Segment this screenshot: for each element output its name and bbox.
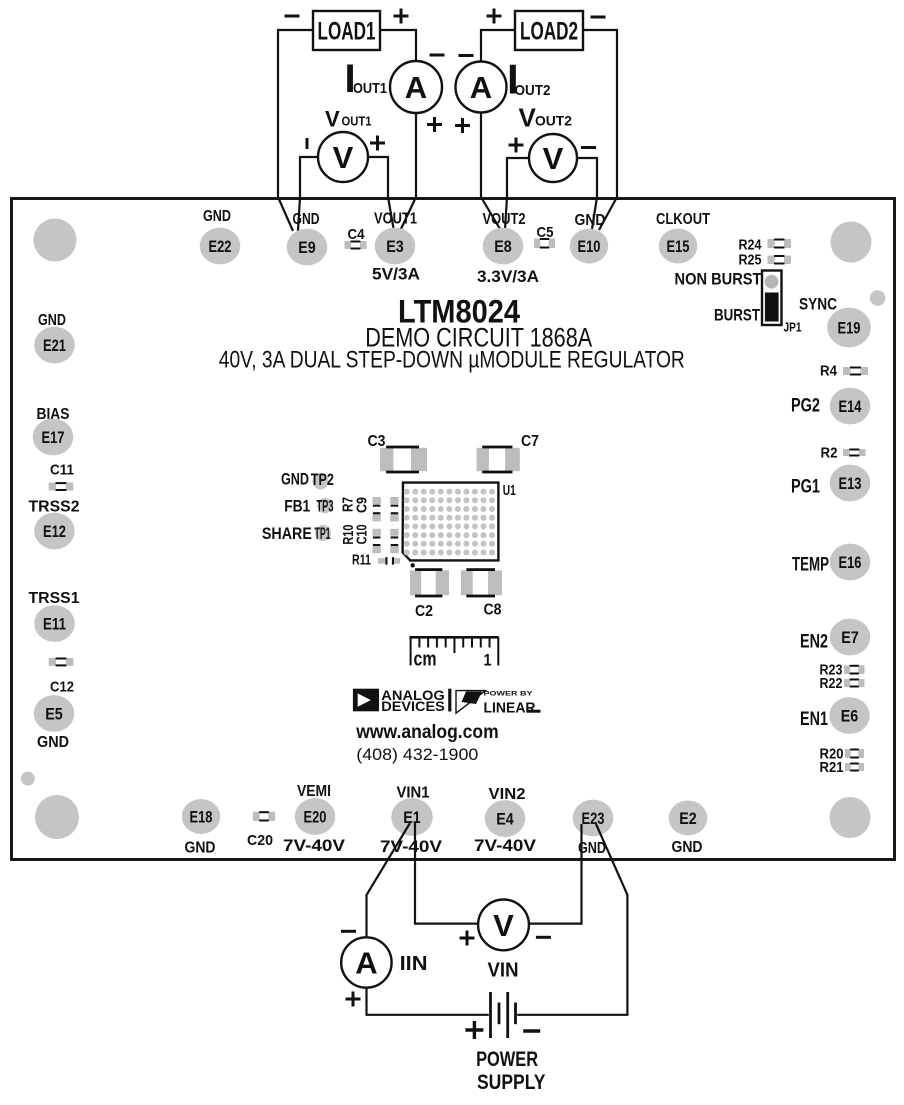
svg-text:C10: C10	[354, 524, 370, 544]
svg-text:C3: C3	[368, 433, 386, 450]
svg-text:E18: E18	[190, 808, 213, 826]
svg-text:A: A	[405, 70, 427, 105]
svg-text:C5: C5	[537, 224, 554, 241]
svg-text:E22: E22	[209, 238, 232, 256]
svg-text:PG1: PG1	[791, 477, 820, 498]
svg-text:GND: GND	[185, 840, 216, 857]
svg-text:E9: E9	[298, 239, 316, 257]
svg-text:PG2: PG2	[791, 396, 820, 417]
svg-text:R2: R2	[821, 445, 838, 462]
svg-text:www.analog.com: www.analog.com	[355, 722, 498, 743]
svg-text:C20: C20	[247, 832, 273, 849]
svg-text:OUT1: OUT1	[342, 114, 372, 129]
svg-text:R4: R4	[820, 363, 838, 380]
svg-text:E15: E15	[667, 238, 690, 256]
svg-text:E1: E1	[403, 809, 421, 827]
svg-text:SUPPLY: SUPPLY	[477, 1071, 546, 1094]
svg-text:CLKOUT: CLKOUT	[656, 211, 710, 228]
svg-text:GND: GND	[293, 211, 320, 228]
svg-text:OUT2: OUT2	[515, 82, 551, 99]
svg-text:V: V	[543, 141, 564, 176]
svg-text:E4: E4	[496, 810, 514, 828]
svg-text:LINEAR: LINEAR	[484, 699, 536, 716]
svg-text:EN1: EN1	[800, 709, 828, 730]
svg-text:(408) 432-1900: (408) 432-1900	[356, 746, 478, 764]
svg-text:C7: C7	[521, 433, 539, 450]
svg-text:GND: GND	[37, 734, 69, 751]
svg-text:A: A	[355, 946, 377, 981]
svg-text:E12: E12	[43, 523, 66, 541]
svg-text:V: V	[519, 103, 537, 133]
svg-text:40V, 3A DUAL STEP-DOWN µMODULE: 40V, 3A DUAL STEP-DOWN µMODULE REGULATOR	[219, 346, 685, 373]
svg-text:GND: GND	[203, 208, 231, 225]
svg-text:E16: E16	[839, 554, 862, 572]
svg-text:R25: R25	[739, 252, 762, 269]
svg-text:E11: E11	[43, 615, 66, 633]
svg-text:VIN: VIN	[488, 959, 519, 981]
svg-text:POWER BY: POWER BY	[484, 691, 533, 697]
svg-text:BURST: BURST	[714, 306, 760, 325]
svg-text:E3: E3	[386, 238, 404, 256]
svg-text:7V-40V: 7V-40V	[283, 837, 345, 855]
svg-text:SHARE: SHARE	[262, 525, 312, 543]
svg-text:7V-40V: 7V-40V	[474, 837, 536, 855]
svg-text:C8: C8	[484, 602, 502, 619]
svg-text:E7: E7	[841, 629, 859, 647]
svg-text:R21: R21	[820, 759, 844, 776]
svg-text:DEVICES: DEVICES	[381, 699, 445, 714]
svg-text:TP3: TP3	[317, 498, 334, 516]
svg-text:NON BURST: NON BURST	[675, 270, 763, 289]
svg-text:E21: E21	[43, 337, 66, 355]
svg-text:GND: GND	[38, 312, 66, 329]
svg-text:V: V	[493, 908, 514, 943]
svg-text:E20: E20	[304, 808, 327, 826]
svg-text:JP1: JP1	[784, 320, 802, 335]
svg-text:V: V	[333, 140, 354, 175]
svg-text:GND: GND	[575, 212, 606, 229]
svg-text:E19: E19	[838, 319, 861, 337]
svg-text:E23: E23	[582, 810, 605, 828]
svg-text:FB1: FB1	[284, 497, 310, 515]
svg-text:3.3V/3A: 3.3V/3A	[477, 268, 539, 286]
svg-text:E2: E2	[679, 810, 697, 828]
svg-text:LOAD1: LOAD1	[318, 18, 376, 46]
svg-text:IIN: IIN	[400, 953, 428, 975]
svg-text:C12: C12	[50, 679, 74, 696]
svg-text:E6: E6	[841, 707, 859, 725]
svg-text:E10: E10	[578, 238, 601, 256]
svg-text:E5: E5	[45, 705, 63, 723]
svg-text:C2: C2	[415, 603, 433, 620]
svg-text:LOAD2: LOAD2	[520, 18, 578, 46]
svg-text:POWER: POWER	[476, 1048, 538, 1071]
svg-text:C4: C4	[348, 226, 366, 243]
svg-text:VOUT1: VOUT1	[374, 211, 417, 228]
svg-text:OUT2: OUT2	[535, 112, 572, 128]
svg-text:A: A	[470, 70, 492, 105]
svg-text:OUT1: OUT1	[353, 80, 387, 97]
svg-text:TP1: TP1	[315, 525, 331, 543]
svg-text:VEMI: VEMI	[297, 783, 331, 800]
svg-text:cm: cm	[414, 649, 437, 671]
svg-text:V: V	[325, 107, 340, 132]
svg-text:E13: E13	[839, 475, 862, 493]
svg-text:7V-40V: 7V-40V	[380, 838, 442, 856]
svg-text:5V/3A: 5V/3A	[372, 266, 420, 284]
svg-text:VOUT2: VOUT2	[483, 211, 526, 228]
svg-text:C9: C9	[354, 497, 370, 513]
svg-text:1: 1	[484, 650, 492, 669]
svg-text:U1: U1	[503, 482, 516, 499]
svg-text:GND: GND	[281, 470, 309, 488]
svg-text:TRSS1: TRSS1	[29, 590, 80, 607]
svg-text:SYNC: SYNC	[799, 295, 837, 314]
svg-text:EN2: EN2	[800, 632, 828, 653]
svg-text:GND: GND	[672, 839, 703, 856]
svg-text:R22: R22	[820, 675, 843, 692]
svg-text:TEMP: TEMP	[792, 555, 829, 576]
svg-text:E8: E8	[494, 238, 512, 256]
svg-text:R11: R11	[352, 551, 371, 568]
svg-text:C11: C11	[50, 462, 74, 479]
svg-text:TP2: TP2	[311, 471, 334, 489]
svg-text:E14: E14	[839, 398, 863, 416]
svg-text:E17: E17	[42, 429, 65, 447]
